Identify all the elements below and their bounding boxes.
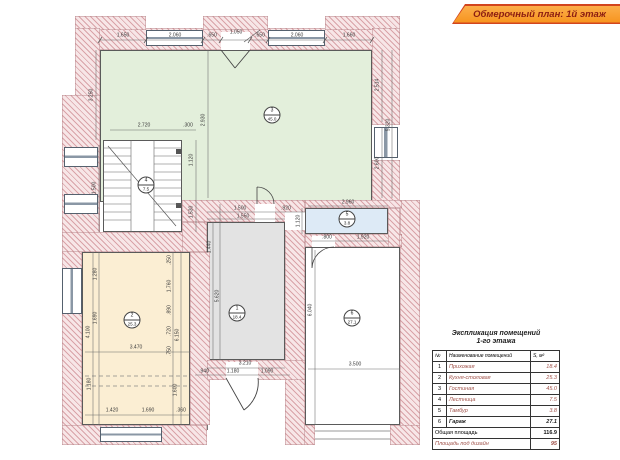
room-num: 3 (433, 384, 447, 395)
room-number-marker: 53.8 (339, 211, 356, 228)
marker-room-number: 3 (265, 108, 280, 115)
marker-room-area: 7.5 (139, 185, 154, 193)
dimension-label: 1.690 (142, 409, 155, 414)
dimension-label: .920 (281, 207, 291, 212)
marker-room-number: 1 (230, 306, 245, 313)
room-name: Гараж (447, 417, 531, 428)
dimension-label: .940 (199, 370, 209, 375)
marker-room-area: 25.3 (125, 320, 140, 328)
room-number-marker: 225.3 (124, 312, 141, 329)
dimension-label: 1.420 (106, 409, 119, 414)
dimension-label: 1.090 (261, 370, 274, 375)
room-name: Прихожая (447, 362, 531, 373)
marker-room-area: 27.1 (345, 318, 360, 326)
design-area-value: 95 (531, 439, 560, 450)
room-number-marker: 345.0 (264, 107, 281, 124)
dimension-label: .250 (168, 255, 173, 265)
marker-room-area: 3.8 (340, 219, 355, 227)
marker-room-area: 18.4 (230, 313, 245, 321)
dimension-label: 5.620 (216, 290, 221, 303)
dimension-label: 2.600 (376, 157, 381, 170)
dimension-label: 2.720 (138, 124, 151, 129)
explication-title-line1: Экспликация помещений (432, 330, 560, 338)
table-row: 5 Тамбур 3.8 (433, 406, 560, 417)
dimension-label: 1.440 (208, 241, 213, 254)
explication-title-line2: 1-го этажа (432, 338, 560, 346)
dimension-label: .890 (168, 305, 173, 315)
marker-room-number: 6 (345, 311, 360, 318)
dimension-label: .650 (255, 34, 265, 39)
dimension-label: .300 (183, 124, 193, 129)
dimension-label: 1.120 (190, 154, 195, 167)
dimension-label: 2.930 (202, 114, 207, 127)
dimension-label: 1.660 (343, 34, 356, 39)
marker-room-number: 5 (340, 212, 355, 219)
marker-room-number: 4 (139, 178, 154, 185)
marker-room-area: 45.0 (265, 115, 280, 123)
total-area-row: Общая площадь 116.9 (433, 428, 560, 439)
col-header-area: S, м² (531, 351, 560, 362)
table-row: 3 Гостиная 45.0 (433, 384, 560, 395)
room-name: Тамбур (447, 406, 531, 417)
dimension-label: 1.050 (230, 31, 243, 36)
dimension-label: 3.500 (349, 363, 362, 368)
dimension-label: .360 (176, 409, 186, 414)
dimension-label: 1.550 (237, 215, 250, 220)
dimension-label: .650 (207, 34, 217, 39)
dimension-label: 6.150 (176, 329, 181, 342)
floor-plan-page: Обмерочный план: 1й этаж (0, 0, 620, 460)
dimension-label: 1.600 (174, 384, 179, 397)
dimension-label: 2.960 (342, 201, 355, 206)
room-name: Лестница (447, 395, 531, 406)
room-area: 3.8 (531, 406, 560, 417)
table-header-row: № Наименование помещений S, м² (433, 351, 560, 362)
col-header-name: Наименование помещений (447, 351, 531, 362)
col-header-num: № (433, 351, 447, 362)
dimension-label: 1.500 (93, 182, 98, 195)
design-area-row: Площадь под дизайн 95 (433, 439, 560, 450)
table-row: 2 Кухня-столовая 25.3 (433, 373, 560, 384)
table-row: 4 Лестница 7.5 (433, 395, 560, 406)
dimension-label: 1.500 (234, 207, 247, 212)
dimension-label: .750 (168, 346, 173, 356)
explication-table: № Наименование помещений S, м² 1 Прихожа… (432, 350, 560, 450)
room-area: 27.1 (531, 417, 560, 428)
marker-room-number: 2 (125, 313, 140, 320)
room-area: 18.4 (531, 362, 560, 373)
room-num: 5 (433, 406, 447, 417)
dimension-label: 6.040 (309, 304, 314, 317)
dimension-label: .800 (322, 236, 332, 241)
dimension-label: 3.470 (130, 346, 143, 351)
dimension-label: 2.060 (169, 34, 182, 39)
room-name: Гостиная (447, 384, 531, 395)
dimension-label: 1.650 (117, 34, 130, 39)
room-num: 4 (433, 395, 447, 406)
dimension-label: .720 (168, 326, 173, 336)
table-row: 1 Прихожая 18.4 (433, 362, 560, 373)
dimension-label: 1.280 (94, 268, 99, 281)
design-area-label: Площадь под дизайн (433, 439, 531, 450)
room-number-marker: 47.5 (138, 177, 155, 194)
dimension-label: 1.530 (190, 206, 195, 219)
dimension-label: 4.100 (87, 326, 92, 339)
total-area-value: 116.9 (531, 428, 560, 439)
dimension-label: 5.320 (387, 119, 392, 132)
dimension-label: 3.250 (90, 89, 95, 102)
total-area-label: Общая площадь (433, 428, 531, 439)
room-area: 45.0 (531, 384, 560, 395)
dimension-label: 1.920 (357, 236, 370, 241)
room-number-marker: 627.1 (344, 310, 361, 327)
dimension-label: 1.120 (297, 215, 302, 228)
table-row: 6 Гараж 27.1 (433, 417, 560, 428)
dimension-label: 1.180 (227, 370, 240, 375)
room-number-marker: 118.4 (229, 305, 246, 322)
room-num: 1 (433, 362, 447, 373)
dimension-label: 2.060 (291, 34, 304, 39)
room-num: 6 (433, 417, 447, 428)
dimension-label: 1.180 (88, 378, 93, 391)
room-area: 7.5 (531, 395, 560, 406)
dimension-label: 2.514 (376, 79, 381, 92)
dimension-label: 3.210 (239, 362, 252, 367)
dimension-label: 1.760 (168, 280, 173, 293)
room-area: 25.3 (531, 373, 560, 384)
room-name: Кухня-столовая (447, 373, 531, 384)
explication-panel: Экспликация помещений 1-го этажа № Наиме… (432, 330, 560, 450)
room-num: 2 (433, 373, 447, 384)
dimension-label: 1.690 (94, 312, 99, 325)
